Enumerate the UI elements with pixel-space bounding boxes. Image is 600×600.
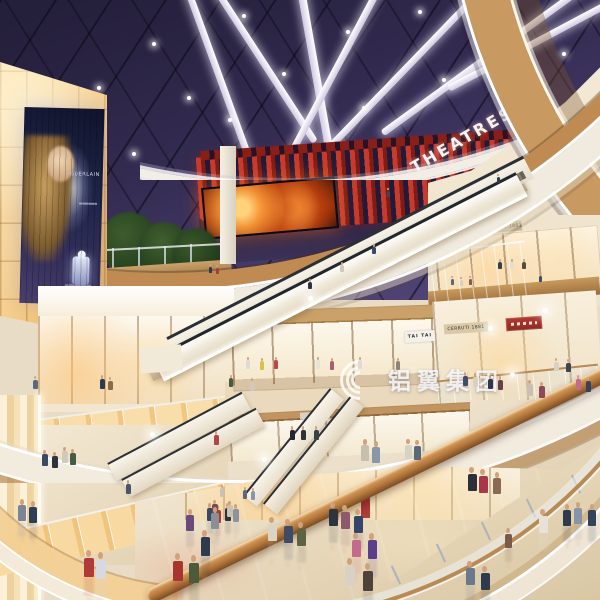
top-floor-fascia-ring (105, 40, 600, 318)
corner-balustrade (352, 428, 600, 600)
bottom-left-balustrade (0, 498, 178, 600)
mall-atrium-rendering: THEATRES CERRUTI 1881 (0, 0, 600, 600)
bottom-left-balustrade-ring (0, 498, 178, 600)
billboard: GUERLAIN (19, 107, 104, 305)
watermark-text: 铝翼集团 (388, 362, 504, 396)
watermark: 铝翼集团 (340, 356, 540, 400)
billboard-led-slats (19, 107, 104, 305)
mini-red-sign (258, 314, 267, 321)
